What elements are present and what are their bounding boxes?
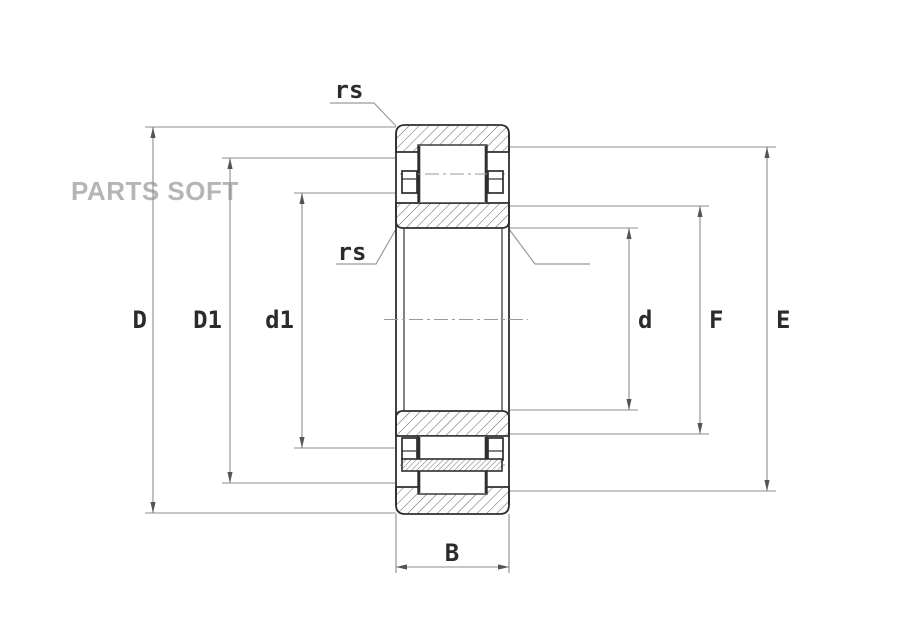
dim-d-label: d [638, 306, 652, 334]
dim-E-label: E [776, 306, 790, 334]
cage-bridge-bar [402, 459, 502, 471]
dim-D1-label: D1 [193, 306, 222, 334]
dim-D-label: D [133, 306, 147, 334]
dim-d1-label: d1 [265, 306, 294, 334]
cage-pocket-top-left [402, 171, 417, 193]
inner-ring-top-section [396, 203, 509, 228]
dimension-B: B [396, 514, 509, 573]
dim-F-label: F [709, 306, 723, 334]
drawing-canvas: PARTS SOFT D D1 d1 d [0, 0, 900, 637]
cage-pocket-bottom-left [402, 438, 417, 460]
rs-outer-label: rs [335, 76, 364, 104]
cage-pocket-bottom-right [488, 438, 503, 460]
callout-rs-bore: rs [336, 229, 396, 266]
bearing-diagram: PARTS SOFT D D1 d1 d [0, 0, 900, 637]
dim-B-label: B [445, 539, 459, 567]
dimension-F: F [509, 206, 723, 434]
watermark-text: PARTS SOFT [71, 176, 239, 206]
cage-pocket-top-right [488, 171, 503, 193]
dimension-d: d [509, 228, 652, 410]
bearing-cross-section [384, 125, 528, 514]
rs-bore-label: rs [338, 238, 367, 266]
dimension-D1: D1 [193, 158, 396, 483]
dimension-d1: d1 [265, 193, 396, 448]
inner-ring-bottom-section [396, 411, 509, 436]
callout-r1s [509, 229, 590, 264]
callout-rs-outer: rs [330, 76, 396, 126]
